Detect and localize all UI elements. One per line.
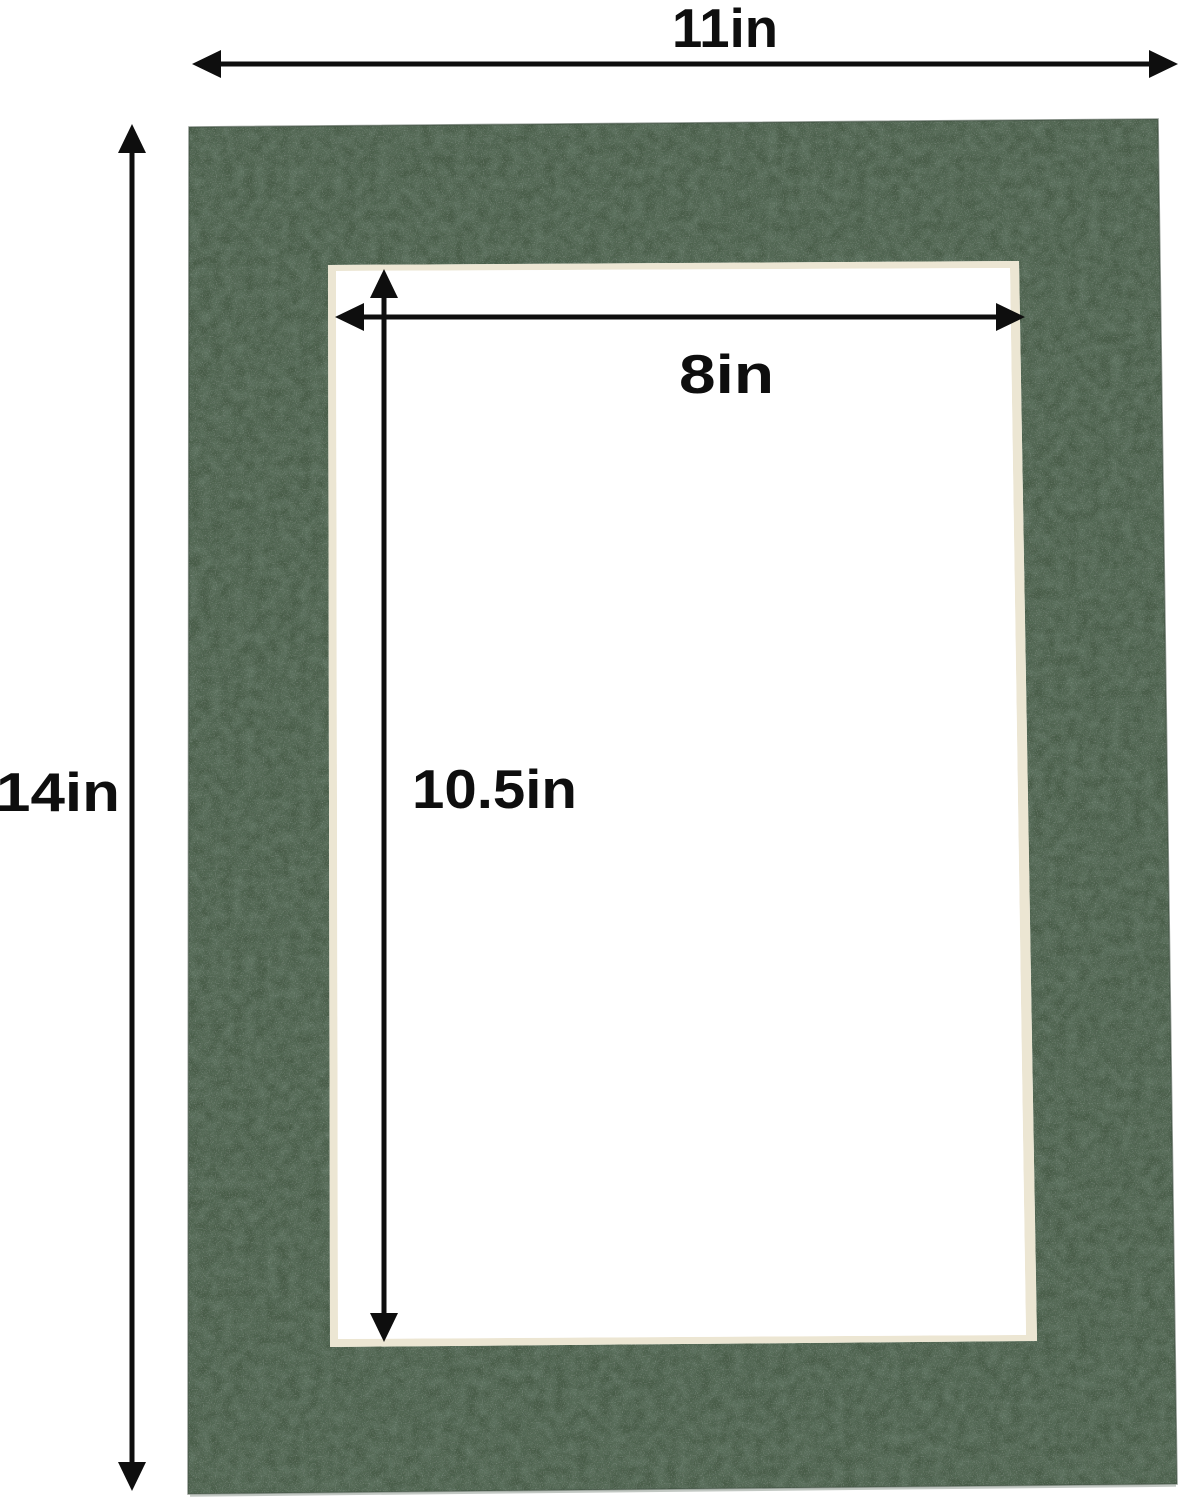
svg-text:10.5in: 10.5in: [412, 758, 577, 820]
svg-text:14in: 14in: [0, 761, 120, 823]
svg-text:8in: 8in: [679, 343, 774, 405]
svg-text:11in: 11in: [672, 0, 778, 59]
